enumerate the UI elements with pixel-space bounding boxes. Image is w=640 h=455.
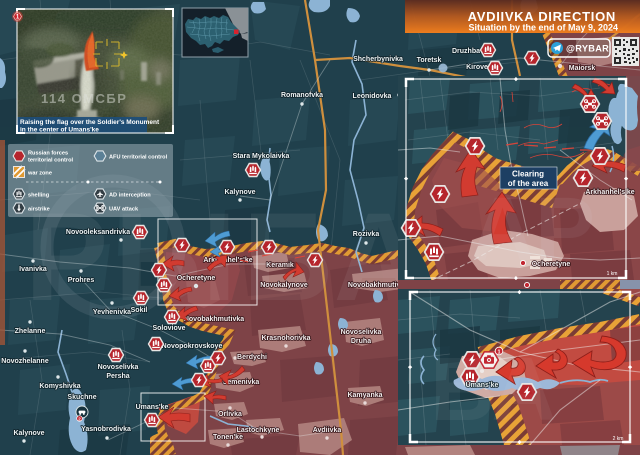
svg-text:Kirove: Kirove [466,64,488,71]
svg-text:Novobakhmutivka: Novobakhmutivka [184,316,244,323]
svg-text:Ivanivka: Ivanivka [19,266,47,273]
svg-text:Skuchne: Skuchne [67,394,96,401]
svg-text:2 km: 2 km [613,436,624,442]
svg-text:БА: БА [430,340,556,440]
svg-text:Kalynove: Kalynove [13,430,44,437]
svg-text:Keramik: Keramik [266,262,294,269]
svg-text:1 km: 1 km [607,271,618,277]
svg-text:Yasnobrodivka: Yasnobrodivka [81,426,131,433]
svg-text:Prohres: Prohres [68,277,95,284]
svg-text:Toretsk: Toretsk [417,57,442,64]
svg-text:Arkhanhel's'ke: Arkhanhel's'ke [203,257,252,264]
svg-text:Druha: Druha [351,338,371,345]
svg-text:Kamyanka: Kamyanka [347,392,382,399]
svg-text:Novozhelanne: Novozhelanne [1,358,49,365]
svg-text:Maiorsk: Maiorsk [569,65,596,72]
svg-text:territorial control: territorial control [28,158,74,164]
svg-text:shelling: shelling [28,193,50,199]
svg-text:Novopokrovskoye: Novopokrovskoye [162,343,223,350]
svg-text:114 ОМСБР: 114 ОМСБР [41,91,127,106]
svg-text:Russian forces: Russian forces [28,151,68,157]
svg-text:Yevhenivka: Yevhenivka [93,309,131,316]
svg-text:UAV attack: UAV attack [109,207,139,213]
svg-text:Raising the flag over the Sold: Raising the flag over the Soldier's Monu… [20,119,160,126]
svg-text:АР: АР [470,180,595,280]
svg-text:Umans'ke: Umans'ke [136,404,169,411]
svg-text:Situation by the end of May 9,: Situation by the end of May 9, 2024 [468,23,618,33]
svg-text:Orlivka: Orlivka [218,411,242,418]
svg-text:Novokalynove: Novokalynove [260,282,308,289]
svg-text:Rozivka: Rozivka [353,231,380,238]
svg-text:Novoselivka: Novoselivka [341,329,382,336]
svg-text:Shcherbynivka: Shcherbynivka [353,56,403,63]
svg-text:airstrike: airstrike [28,207,50,213]
svg-text:AFU territorial control: AFU territorial control [109,155,168,161]
svg-text:Druzhba: Druzhba [452,48,480,55]
svg-text:@RYBAR: @RYBAR [566,44,609,54]
svg-text:Persha: Persha [106,373,129,380]
svg-text:Ocheretyne: Ocheretyne [177,275,216,282]
svg-text:Stara Mykolaivka: Stara Mykolaivka [233,153,290,160]
svg-text:Avdiivka: Avdiivka [313,427,342,434]
svg-text:Soloviove: Soloviove [152,325,185,332]
svg-text:AD interception: AD interception [109,193,151,199]
svg-text:Berdychi: Berdychi [237,354,267,361]
svg-text:Lastochkyne: Lastochkyne [237,427,280,434]
svg-text:Novoselivka: Novoselivka [98,364,139,371]
svg-text:Kalynove: Kalynove [224,189,255,196]
svg-text:Komyshivka: Komyshivka [39,383,80,390]
svg-text:Leonidovka: Leonidovka [353,93,392,100]
svg-text:Tonen'ke: Tonen'ke [213,434,243,441]
svg-text:Zhelanne: Zhelanne [15,328,46,335]
svg-text:Krasnohorivka: Krasnohorivka [261,335,310,342]
svg-text:Novooleksandrivka: Novooleksandrivka [66,229,130,236]
svg-text:Sokil: Sokil [131,307,148,314]
svg-text:Clearing: Clearing [512,170,544,179]
svg-text:war zone: war zone [27,171,52,177]
svg-text:Romanofvka: Romanofvka [281,92,323,99]
